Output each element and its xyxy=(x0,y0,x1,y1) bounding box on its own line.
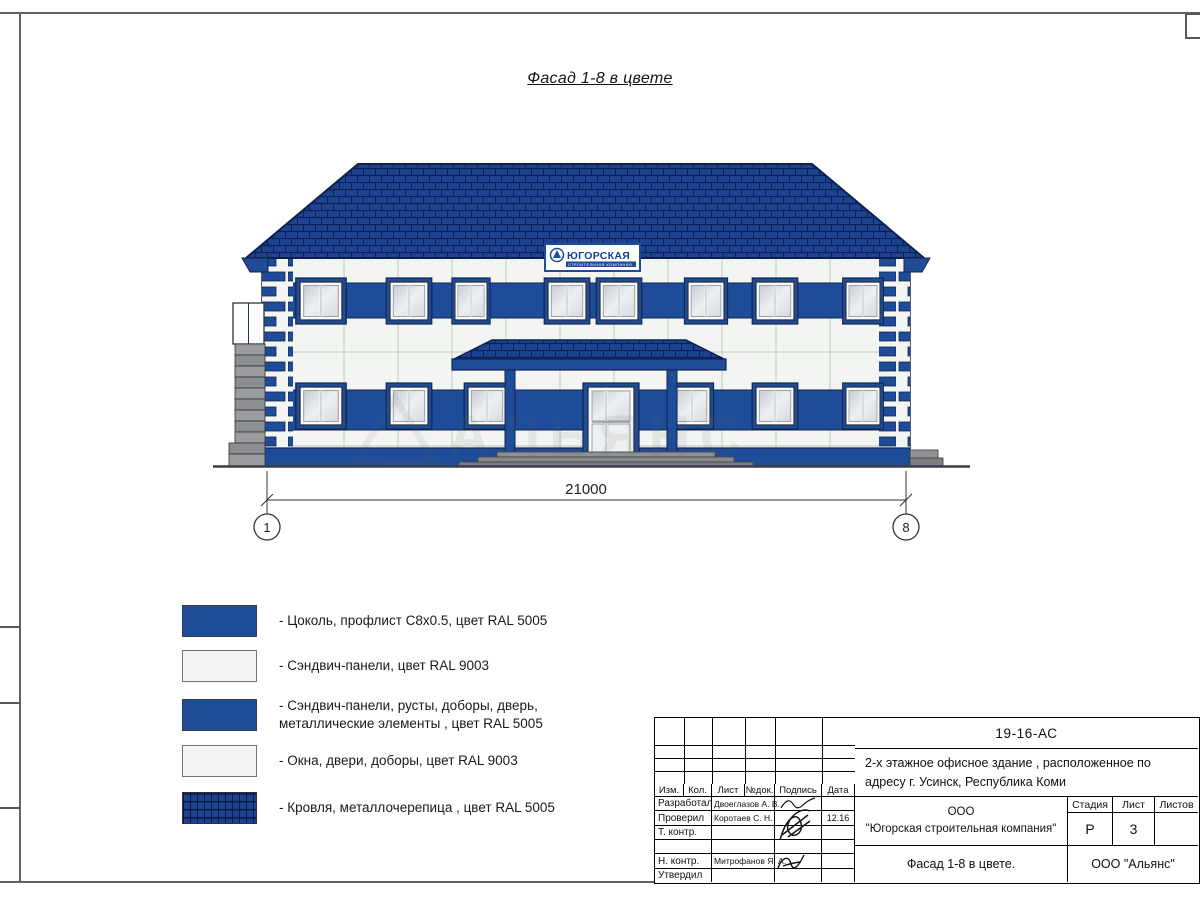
row-date xyxy=(822,826,855,840)
row-role: Т. контр. xyxy=(655,826,712,840)
col-ndok: №док. xyxy=(745,784,775,797)
row-date xyxy=(822,869,855,882)
margin-tick xyxy=(0,702,20,704)
row-signature xyxy=(775,869,822,882)
roof-edge-cap-right xyxy=(904,258,930,272)
company-line1: ООО xyxy=(948,804,975,821)
grid-line xyxy=(822,718,823,784)
margin-tick xyxy=(0,626,20,628)
drawing-name: Фасад 1-8 в цвете. xyxy=(855,846,1068,882)
row-signature xyxy=(775,797,822,811)
row-name: Двоеглазов А. В. xyxy=(712,797,775,811)
row-name: Коротаев С. Н. xyxy=(712,811,775,826)
row-signature xyxy=(775,826,822,840)
right-platform xyxy=(910,450,943,466)
row-role: Проверил xyxy=(655,811,712,826)
row-role: Н. контр. xyxy=(655,854,712,869)
legend-item: - Сэндвич-панели, русты, доборы, дверь, … xyxy=(182,697,543,733)
drawing-sheet: { "page": { "title": "Фасад 1-8 в цвете"… xyxy=(0,0,1200,900)
legend-swatch-roof xyxy=(182,792,257,824)
sheet-label: Лист xyxy=(1113,797,1155,813)
stage-value: Р xyxy=(1068,813,1113,846)
grid-line xyxy=(712,718,713,784)
margin-tick xyxy=(0,807,20,809)
legend-item: - Окна, двери, доборы, цвет RAL 9003 xyxy=(182,745,518,777)
legend-swatch-sandwich xyxy=(182,650,257,682)
row-role: Утвердил xyxy=(655,869,712,882)
corner-rustication-left xyxy=(262,258,293,448)
title-block: Изм. Кол. Лист №док. Подпись Дата Разраб… xyxy=(654,717,1200,884)
legend-label: - Сэндвич-панели, русты, доборы, дверь, … xyxy=(279,697,543,733)
col-podpis: Подпись xyxy=(775,784,822,797)
sheets-label: Листов xyxy=(1155,797,1198,813)
row-name xyxy=(712,869,775,882)
row-signature xyxy=(775,811,822,826)
col-data: Дата xyxy=(822,784,855,797)
col-list: Лист xyxy=(712,784,745,797)
row-role: Разработал xyxy=(655,797,712,811)
watermark-text: АЛЬЯНС xyxy=(448,404,750,469)
row-date xyxy=(822,854,855,869)
legend-swatch-trim xyxy=(182,699,257,731)
legend-swatch-windows xyxy=(182,745,257,777)
facade-drawing: ЮГОРСКАЯ СТРОИТЕЛЬНАЯ КОМПАНИЯ АЛЬЯНС 21… xyxy=(0,0,1200,560)
legend-item: - Кровля, металлочерепица , цвет RAL 500… xyxy=(182,792,555,824)
col-izm: Изм. xyxy=(655,784,684,797)
axis-label-8: 8 xyxy=(902,520,909,535)
dimension-value: 21000 xyxy=(565,481,607,498)
roof-edge-cap-left xyxy=(242,258,268,272)
grid-line xyxy=(655,758,855,759)
sheet-value: 3 xyxy=(1113,813,1155,846)
sign-title: ЮГОРСКАЯ xyxy=(567,250,630,262)
row-signature xyxy=(775,854,822,869)
org-name: ООО "Альянс" xyxy=(1068,846,1198,882)
external-staircase xyxy=(229,303,265,466)
legend-item: - Сэндвич-панели, цвет RAL 9003 xyxy=(182,650,489,682)
company-cell: ООО "Югорская строительная компания" xyxy=(855,797,1068,846)
row-signature xyxy=(775,840,822,854)
sign-subtitle: СТРОИТЕЛЬНАЯ КОМПАНИЯ xyxy=(568,263,632,267)
legend-label: - Сэндвич-панели, цвет RAL 9003 xyxy=(279,657,489,675)
grid-line xyxy=(745,718,746,784)
row-date xyxy=(822,797,855,811)
legend-label: - Окна, двери, доборы, цвет RAL 9003 xyxy=(279,752,518,770)
row-role xyxy=(655,840,712,854)
axis-label-1: 1 xyxy=(263,520,270,535)
grid-line xyxy=(655,771,855,772)
stage-label: Стадия xyxy=(1068,797,1113,813)
grid-line xyxy=(684,718,685,784)
project-description: 2-х этажное офисное здание , расположенн… xyxy=(855,749,1198,797)
col-kol: Кол. xyxy=(684,784,712,797)
grid-line xyxy=(775,718,776,784)
row-date: 12.16 xyxy=(822,811,855,826)
row-name xyxy=(712,840,775,854)
row-name xyxy=(712,826,775,840)
legend: - Цоколь, профлист С8х0.5, цвет RAL 5005… xyxy=(182,605,602,835)
company-line2: "Югорская строительная компания" xyxy=(866,821,1057,838)
sheets-value xyxy=(1155,813,1198,846)
legend-label: - Кровля, металлочерепица , цвет RAL 500… xyxy=(279,799,555,817)
grid-line xyxy=(655,745,855,746)
doc-number: 19-16-АС xyxy=(855,718,1198,749)
legend-swatch-plinth xyxy=(182,605,257,637)
legend-item: - Цоколь, профлист С8х0.5, цвет RAL 5005 xyxy=(182,605,547,637)
row-name: Митрофанов Я. А. xyxy=(712,854,775,869)
legend-label: - Цоколь, профлист С8х0.5, цвет RAL 5005 xyxy=(279,612,547,630)
row-date xyxy=(822,840,855,854)
company-sign: ЮГОРСКАЯ СТРОИТЕЛЬНАЯ КОМПАНИЯ xyxy=(545,244,640,271)
